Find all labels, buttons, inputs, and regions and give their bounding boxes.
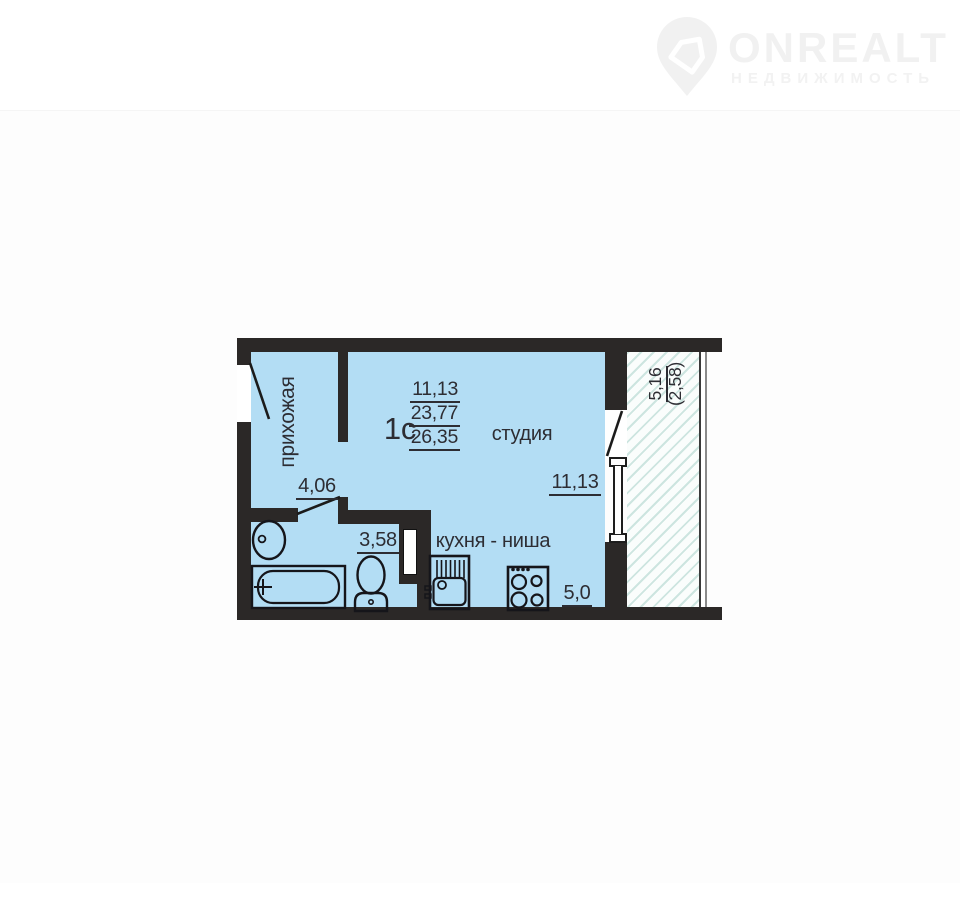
balcony-door-leaf-icon (607, 411, 622, 456)
real-estate-floorplan-page: ONREALT НЕДВИЖИМОСТЬ (0, 0, 960, 910)
studio-label: студия (482, 423, 562, 445)
bathroom-area-value: 3,58 (353, 529, 403, 551)
kitchen-sink-icon (425, 556, 469, 609)
studio-area-value: 11,13 (545, 471, 605, 493)
washbasin-icon (253, 521, 285, 559)
stove-icon (508, 567, 548, 610)
living-area-value: 11,13 (398, 378, 460, 400)
total-area-value: 23,77 (398, 402, 460, 424)
total-area-with-balcony-value: 26,35 (398, 426, 460, 448)
toilet-icon (355, 557, 387, 612)
kitchen-niche-label: кухня - ниша (432, 530, 554, 552)
kitchen-area-value: 5,0 (552, 582, 602, 604)
entry-door-leaf-icon (250, 363, 269, 419)
balcony-area-value: 5,16 (2,58) (645, 355, 689, 413)
plan-fixtures-layer (0, 0, 960, 910)
bathtub-icon (252, 566, 345, 608)
hallway-label: прихожая (276, 352, 300, 492)
hallway-area-value: 4,06 (292, 475, 342, 497)
